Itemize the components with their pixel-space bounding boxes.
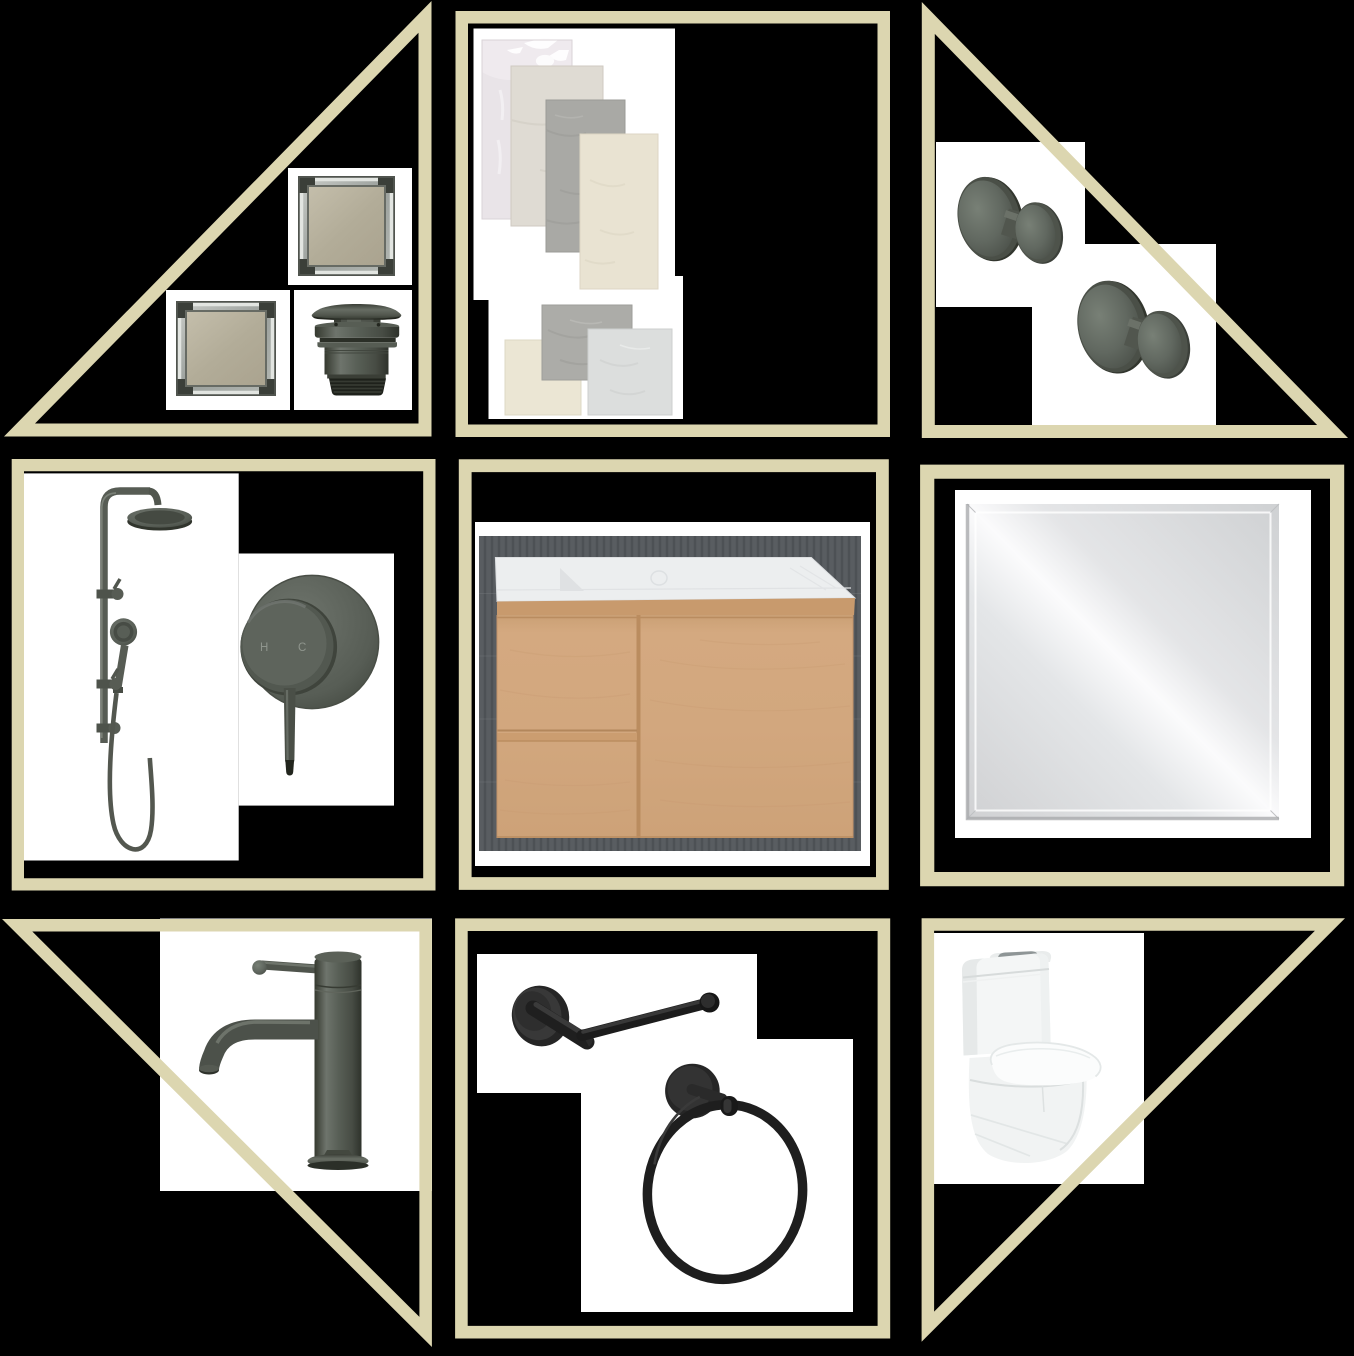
svg-text:H: H xyxy=(260,642,268,654)
svg-text:C: C xyxy=(298,642,306,654)
